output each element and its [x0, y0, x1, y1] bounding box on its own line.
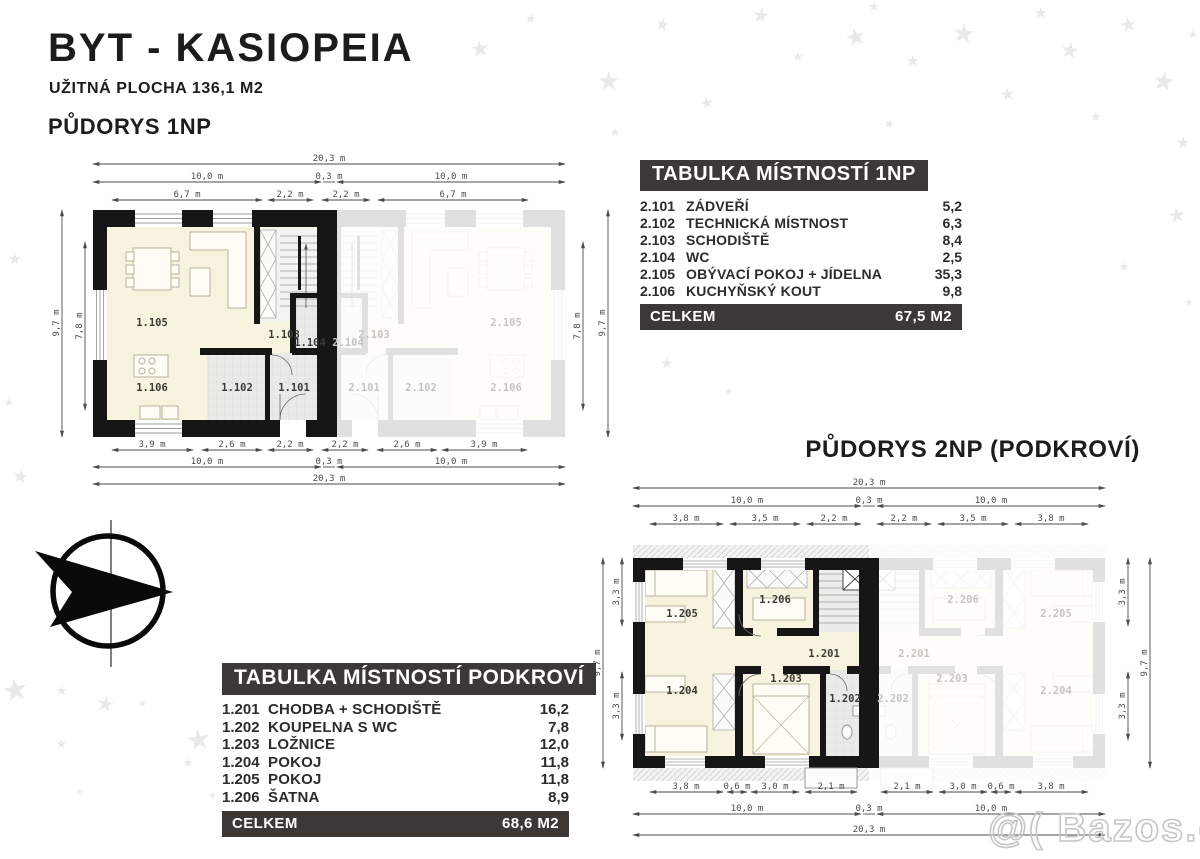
room-name: KOUPELNA S WC: [268, 719, 548, 736]
star-icon: ★: [184, 724, 213, 755]
room-id: 2.103: [640, 232, 686, 248]
room-id: 2.101: [640, 198, 686, 214]
table-row: 2.104 WC 2,5: [640, 248, 962, 265]
star-icon: ★: [792, 50, 804, 63]
room-area: 11,8: [541, 771, 569, 788]
dim-label: 7,8 m: [75, 312, 85, 339]
table-row: 1.204 POKOJ 11,8: [222, 754, 569, 772]
floor-plan-2np: 1.205 1.206 1.201 1.204 1.203 1.202 2.20…: [595, 470, 1180, 859]
dim-label: 2,6 m: [218, 440, 245, 450]
dim-label: 2,1 m: [817, 782, 844, 792]
dim-label: 0,6 m: [723, 782, 750, 792]
dim-label: 3,3 m: [1118, 692, 1128, 719]
dim-label: 3,3 m: [612, 692, 622, 719]
room-area: 7,8: [548, 719, 569, 736]
table-row: 1.203 LOŽNICE 12,0: [222, 736, 569, 754]
room-id: 1.203: [222, 736, 268, 753]
page-title: BYT - KASIOPEIA: [48, 26, 414, 71]
room-name: CHODBA + SCHODIŠTĚ: [268, 701, 540, 718]
dim-label: 2,6 m: [393, 440, 420, 450]
floorplan-listing: ★ ★ ★ ★ ★ ★ ★ ★ ★ ★ ★ ★ ★ ★ ★ ★ ★ ★ ★ ★ …: [0, 0, 1200, 859]
table-rows: 1.201 CHODBA + SCHODIŠTĚ 16,2 1.202 KOUP…: [222, 701, 569, 806]
room-area: 16,2: [540, 701, 569, 718]
room-label: 1.106: [136, 382, 168, 394]
dim-label: 3,8 m: [1037, 514, 1064, 524]
plan1-heading: PŮDORYS 1NP: [48, 114, 212, 140]
room-area: 8,4: [943, 232, 962, 248]
room-name: POKOJ: [268, 771, 541, 788]
dim-label: 3,5 m: [751, 514, 778, 524]
dim-label: 20,3 m: [853, 825, 886, 835]
room-id: 1.205: [222, 771, 268, 788]
room-id: 1.201: [222, 701, 268, 718]
room-id: 2.102: [640, 215, 686, 231]
star-icon: ★: [724, 388, 733, 398]
star-icon: ★: [868, 0, 880, 13]
plan1-left-unit: [93, 210, 337, 437]
star-icon: ★: [1150, 67, 1177, 96]
room-table-podkrovi: TABULKA MÍSTNOSTÍ PODKROVÍ 1.201 CHODBA …: [222, 663, 569, 837]
table-row: 1.201 CHODBA + SCHODIŠTĚ 16,2: [222, 701, 569, 719]
star-icon: ★: [138, 700, 147, 710]
dim-label: 3,9 m: [138, 440, 165, 450]
table-row: 2.102 TECHNICKÁ MÍSTNOST 6,3: [640, 214, 962, 231]
star-icon: ★: [1167, 205, 1188, 227]
star-icon: ★: [11, 467, 31, 488]
dim-label: 3,3 m: [1118, 578, 1128, 605]
star-icon: ★: [1058, 38, 1081, 63]
table-row: 2.103 SCHODIŠTĚ 8,4: [640, 231, 962, 248]
star-icon: ★: [4, 398, 14, 409]
dim-label: 3,0 m: [761, 782, 788, 792]
room-label-faded: 2.202: [877, 693, 909, 705]
room-id: 1.204: [222, 754, 268, 771]
table-heading: TABULKA MÍSTNOSTÍ 1NP: [640, 160, 928, 191]
star-icon: ★: [1188, 30, 1198, 41]
room-id: 1.206: [222, 789, 268, 806]
star-icon: ★: [653, 15, 671, 35]
room-label: 1.202: [829, 693, 861, 705]
room-label-faded: 2.206: [947, 594, 979, 606]
dim-label: 0,6 m: [987, 782, 1014, 792]
star-icon: ★: [469, 37, 492, 62]
room-label-faded: 2.105: [490, 317, 522, 329]
star-icon: ★: [1118, 260, 1130, 273]
north-arrow-icon: [30, 515, 210, 675]
dim-label: 6,7 m: [439, 190, 466, 200]
room-label: 1.105: [136, 317, 168, 329]
dim-label: 2,1 m: [893, 782, 920, 792]
table-total-bar: CELKEM 67,5 M2: [640, 304, 962, 330]
total-value: 68,6 M2: [502, 815, 559, 832]
star-icon: ★: [524, 11, 538, 26]
dim-label: 10,0 m: [731, 804, 764, 814]
room-name: SCHODIŠTĚ: [686, 232, 943, 248]
dim-label: 7,8 m: [573, 312, 583, 339]
room-label: 1.102: [221, 382, 253, 394]
room-name: WC: [686, 249, 943, 265]
room-name: OBÝVACÍ POKOJ + JÍDELNA: [686, 266, 935, 282]
room-label-faded: 2.102: [405, 382, 437, 394]
dim-label: 3,8 m: [672, 782, 699, 792]
room-label: 1.101: [278, 382, 310, 394]
room-id: 1.202: [222, 719, 268, 736]
room-table-1np: TABULKA MÍSTNOSTÍ 1NP 2.101 ZÁDVEŘÍ 5,2 …: [640, 160, 962, 330]
star-icon: ★: [1034, 6, 1047, 21]
room-label-faded: 2.106: [490, 382, 522, 394]
total-value: 67,5 M2: [895, 308, 952, 325]
room-label: 1.203: [770, 673, 802, 685]
dim-label: 0,3 m: [315, 457, 342, 467]
star-icon: ★: [906, 54, 919, 69]
star-icon: ★: [699, 95, 715, 112]
room-name: KUCHYŇSKÝ KOUT: [686, 283, 943, 299]
room-label: 1.104: [294, 337, 326, 349]
dim-label: 10,0 m: [435, 457, 468, 467]
room-label-faded: 2.204: [1040, 685, 1072, 697]
room-name: LOŽNICE: [268, 736, 540, 753]
dim-label: 10,0 m: [435, 172, 468, 182]
table-row: 1.202 KOUPELNA S WC 7,8: [222, 719, 569, 737]
dim-label: 20,3 m: [313, 474, 346, 484]
dim-label: 3,9 m: [470, 440, 497, 450]
star-icon: ★: [1090, 110, 1102, 123]
plan2-heading: PŮDORYS 2NP (PODKROVÍ): [700, 436, 1140, 464]
room-area: 5,2: [943, 198, 962, 214]
total-label: CELKEM: [650, 308, 716, 325]
room-label-faded: 2.101: [348, 382, 380, 394]
star-icon: ★: [56, 738, 67, 750]
dim-label: 2,2 m: [820, 514, 847, 524]
dim-label: 0,3 m: [855, 496, 882, 506]
dim-label: 20,3 m: [853, 478, 886, 488]
table-row: 1.205 POKOJ 11,8: [222, 771, 569, 789]
dim-label: 3,8 m: [1037, 782, 1064, 792]
dim-label: 3,0 m: [949, 782, 976, 792]
star-icon: ★: [56, 684, 68, 697]
room-label-faded: 2.203: [936, 673, 968, 685]
dim-label: 0,3 m: [855, 804, 882, 814]
room-area: 6,3: [943, 215, 962, 231]
star-icon: ★: [1118, 15, 1138, 37]
dim-label: 2,2 m: [890, 514, 917, 524]
dim-label: 6,7 m: [173, 190, 200, 200]
usable-area-subtitle: UŽITNÁ PLOCHA 136,1 M2: [49, 80, 263, 98]
total-label: CELKEM: [232, 815, 298, 832]
dim-label: 10,0 m: [975, 496, 1008, 506]
watermark: @( Bazos.cz: [988, 806, 1200, 851]
dim-label: 2,2 m: [331, 440, 358, 450]
room-name: POKOJ: [268, 754, 541, 771]
star-icon: ★: [751, 5, 772, 27]
closet-strip: [260, 230, 276, 318]
dim-label: 2,2 m: [276, 190, 303, 200]
room-id: 2.104: [640, 249, 686, 265]
star-icon: ★: [610, 128, 620, 139]
dim-label: 10,0 m: [191, 457, 224, 467]
table-row: 2.101 ZÁDVEŘÍ 5,2: [640, 197, 962, 214]
room-label: 1.205: [666, 608, 698, 620]
dim-label: 3,3 m: [612, 578, 622, 605]
table-rows: 2.101 ZÁDVEŘÍ 5,2 2.102 TECHNICKÁ MÍSTNO…: [640, 197, 962, 299]
room-label-faded: 2.205: [1040, 608, 1072, 620]
room-label-faded: 2.104: [332, 337, 364, 349]
dim-label: 2,2 m: [332, 190, 359, 200]
table-heading: TABULKA MÍSTNOSTÍ PODKROVÍ: [222, 663, 596, 695]
dim-label: 0,3 m: [315, 172, 342, 182]
star-icon: ★: [8, 252, 21, 267]
dim-label: 9,7 m: [52, 309, 62, 336]
star-icon: ★: [660, 356, 673, 371]
room-area: 12,0: [540, 736, 569, 753]
room-name: ŠATNA: [268, 789, 548, 806]
table-total-bar: CELKEM 68,6 M2: [222, 811, 569, 837]
star-icon: ★: [76, 788, 83, 796]
dim-label: 9,7 m: [1140, 649, 1150, 676]
plan2-left-unit: [633, 545, 879, 788]
room-label-faded: 2.201: [898, 648, 930, 660]
star-icon: ★: [94, 693, 116, 717]
star-icon: ★: [597, 68, 620, 94]
room-name: TECHNICKÁ MÍSTNOST: [686, 215, 943, 231]
floor-plan-1np: 1.105 1.106 1.103 1.104 1.102 1.101 2.10…: [40, 150, 625, 495]
table-row: 2.105 OBÝVACÍ POKOJ + JÍDELNA 35,3: [640, 265, 962, 282]
table-row: 1.206 ŠATNA 8,9: [222, 789, 569, 807]
star-icon: ★: [1176, 136, 1190, 152]
dim-label: 10,0 m: [731, 496, 764, 506]
room-area: 35,3: [935, 266, 962, 282]
room-area: 2,5: [943, 249, 962, 265]
star-icon: ★: [182, 756, 194, 769]
star-icon: ★: [208, 792, 217, 802]
star-icon: ★: [999, 85, 1016, 104]
room-id: 2.106: [640, 283, 686, 299]
star-icon: ★: [883, 117, 897, 131]
dim-label: 20,3 m: [313, 154, 346, 164]
room-id: 2.105: [640, 266, 686, 282]
star-icon: ★: [0, 674, 31, 708]
room-area: 9,8: [943, 283, 962, 299]
dim-label: 9,7 m: [598, 309, 608, 336]
room-label: 1.206: [759, 594, 791, 606]
room-name: ZÁDVEŘÍ: [686, 198, 943, 214]
dim-label: 3,5 m: [959, 514, 986, 524]
dim-label: 2,2 m: [276, 440, 303, 450]
room-area: 8,9: [548, 789, 569, 806]
star-icon: ★: [951, 19, 977, 47]
room-label: 1.204: [666, 685, 698, 697]
dim-label: 3,8 m: [672, 514, 699, 524]
room-area: 11,8: [541, 754, 569, 771]
star-icon: ★: [843, 24, 869, 52]
table-row: 2.106 KUCHYŇSKÝ KOUT 9,8: [640, 282, 962, 299]
star-icon: ★: [1184, 298, 1194, 309]
dim-label: 10,0 m: [191, 172, 224, 182]
room-label: 1.201: [808, 648, 840, 660]
